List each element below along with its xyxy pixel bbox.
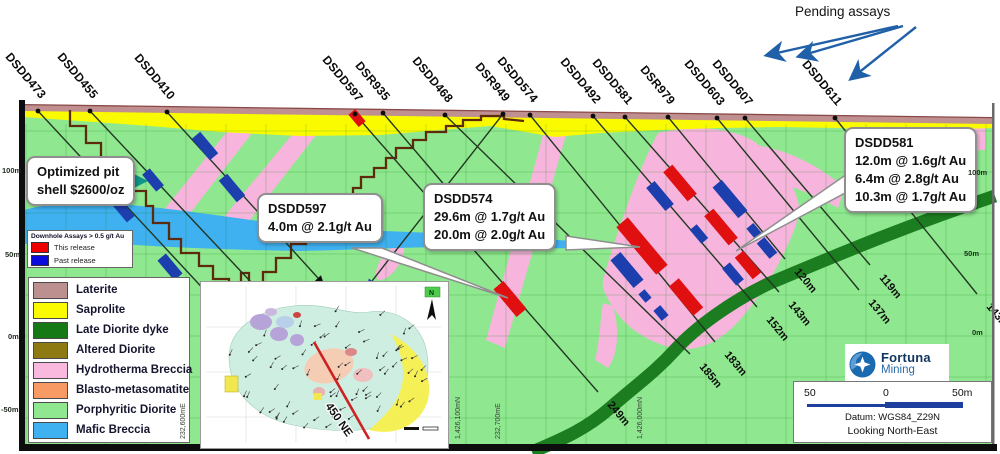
assay-legend-title: Downhole Assays > 0.5 g/t Au [28,231,132,241]
geology-swatch-label: Hydrotherma Breccia [76,364,192,376]
geology-swatch-label: Saprolite [76,304,125,316]
scale-right-value: 50m [952,387,972,399]
assay-swatch [31,255,49,266]
fortuna-logo-icon [849,351,876,378]
callout-line: Optimized pit [37,163,124,181]
callout-line: DSDD597 [268,200,372,218]
grid-coordinate-label: 232,700mE [495,403,502,439]
geology-swatch [33,302,68,319]
geology-swatch [33,362,68,379]
callout-line: 10.3m @ 1.7g/t Au [855,188,966,206]
callout-dsdd597: DSDD5974.0m @ 2.1g/t Au [257,193,383,243]
callout-line: 6.4m @ 2.8g/t Au [855,170,966,188]
scale-datum-box: 50 0 50m Datum: WGS84_Z29N Looking North… [793,381,992,443]
callout-dsdd574: DSDD57429.6m @ 1.7g/t Au20.0m @ 2.0g/t A… [423,183,556,251]
callout-line: 29.6m @ 1.7g/t Au [434,208,545,226]
svg-text:N: N [429,290,434,297]
assay-swatch-label: This release [54,243,95,252]
elevation-label: 0m [8,332,19,341]
geology-legend-row: Porphyritic Diorite [29,400,189,420]
callout-line: 20.0m @ 2.0g/t Au [434,226,545,244]
assay-legend-row: This release [28,241,132,254]
scale-bar-left-segment [807,404,885,407]
elevation-label: 100m [2,166,21,175]
callout-dsdd581: DSDD58112.0m @ 1.6g/t Au6.4m @ 2.8g/t Au… [844,127,977,213]
elevation-label: 50m [5,250,20,259]
geology-swatch-label: Late Diorite dyke [76,324,169,336]
callout-line: 12.0m @ 1.6g/t Au [855,152,966,170]
geology-legend-row: Mafic Breccia [29,420,189,440]
geology-swatch-label: Laterite [76,284,118,296]
elevation-label: 50m [964,249,979,258]
callout-line: 4.0m @ 2.1g/t Au [268,218,372,236]
geology-swatch-label: Altered Diorite [76,344,155,356]
geology-legend-row: Late Diorite dyke [29,320,189,340]
geology-legend-row: Altered Diorite [29,340,189,360]
looking-direction-label: Looking North-East [794,425,991,437]
elevation-label: 0m [972,328,983,337]
right-border [992,103,995,444]
callout-line: DSDD581 [855,134,966,152]
scale-bar-right-segment [885,402,963,408]
datum-label: Datum: WGS84_Z29N [794,412,991,423]
logo-subtitle: Mining [881,364,931,376]
geology-swatch [33,382,68,399]
left-border [19,100,25,451]
assay-legend-row: Past release [28,254,132,267]
grid-coordinate-label: 232,600mE [180,403,187,439]
geology-legend-row: Saprolite [29,300,189,320]
geology-legend-row: Hydrotherma Breccia [29,360,189,380]
scale-mid-value: 0 [883,387,889,399]
bottom-border [19,444,997,451]
geology-swatch-label: Porphyritic Diorite [76,404,176,416]
assay-swatch [31,242,49,253]
geology-legend: LateriteSaproliteLate Diorite dykeAltere… [28,277,190,443]
geology-legend-row: Laterite [29,280,189,300]
elevation-label: -50m [1,405,19,414]
geology-swatch [33,322,68,339]
geology-swatch-label: Blasto-metasomatite [76,384,189,396]
geology-legend-row: Blasto-metasomatite [29,380,189,400]
grid-coordinate-label: 1,426,000mN [637,397,644,439]
callout-line: shell $2600/oz [37,181,124,199]
inset-location-map: 450 NE N [200,281,449,449]
scale-left-value: 50 [804,387,816,399]
company-logo: Fortuna Mining [845,344,949,384]
pending-assays-label: Pending assays [795,4,890,19]
logo-name: Fortuna [881,352,931,364]
drill-section-figure: { "pending": {"label": "Pending assays"}… [0,0,1000,454]
geology-swatch-label: Mafic Breccia [76,424,150,436]
callout-pit: Optimized pitshell $2600/oz [26,156,135,206]
geology-swatch [33,282,68,299]
callout-line: DSDD574 [434,190,545,208]
elevation-label: 100m [968,168,987,177]
grid-coordinate-label: 1,426,100mN [455,397,462,439]
geology-swatch [33,342,68,359]
assay-swatch-label: Past release [54,256,96,265]
geology-swatch [33,402,68,419]
assay-legend: Downhole Assays > 0.5 g/t Au This releas… [27,230,133,268]
geology-swatch [33,422,68,439]
